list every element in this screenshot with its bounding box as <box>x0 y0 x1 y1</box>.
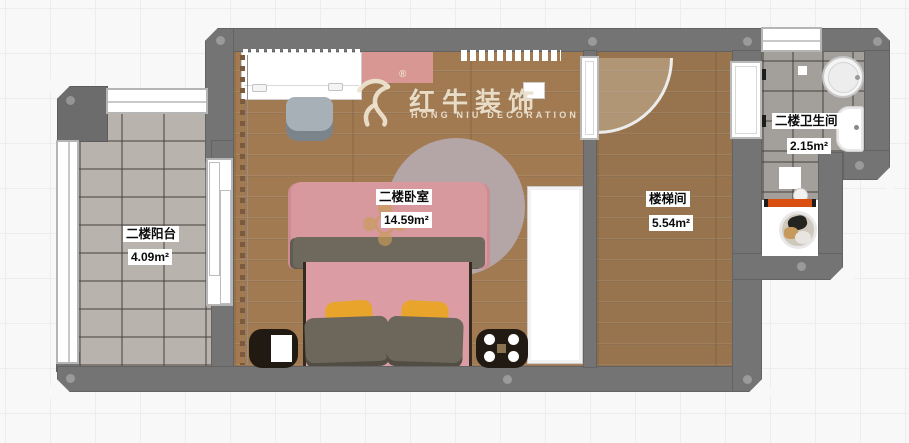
bathroom-door-panel <box>730 61 762 139</box>
gray-pillow <box>304 316 390 369</box>
bull-icon <box>352 76 406 128</box>
bathroom-area: 2.15m² <box>787 138 831 154</box>
washing-machine <box>762 200 818 256</box>
laundry-light <box>795 231 811 244</box>
nightstand-left <box>249 329 298 368</box>
basin-faucet <box>855 75 860 80</box>
knob <box>484 334 495 345</box>
wall-balcony-corner <box>57 86 108 142</box>
wall-joint <box>66 374 75 383</box>
registered-mark: ® <box>399 69 406 80</box>
nightstand-drawer <box>271 335 292 362</box>
wall-joint <box>66 96 75 105</box>
washer-panel <box>764 199 816 207</box>
knob <box>508 334 519 345</box>
knob <box>508 351 519 362</box>
hanging-rail-dashes <box>243 49 361 53</box>
balcony-area: 4.09m² <box>128 249 172 265</box>
balcony-label: 二楼阳台 <box>123 226 179 242</box>
wall-bottom <box>57 366 762 392</box>
sliding-window-pane <box>220 190 231 304</box>
chair <box>286 97 333 141</box>
desk-item <box>328 83 343 91</box>
bathroom-window <box>761 27 822 52</box>
hanger-tabs <box>461 50 561 61</box>
wall-joint <box>743 375 752 384</box>
curtain-rail <box>247 55 248 365</box>
curtain <box>240 55 245 365</box>
nightstand-center <box>497 344 506 353</box>
watermark-subtitle: HONG NIU DECORATION <box>411 110 579 120</box>
wardrobe <box>527 186 583 364</box>
wall-joint <box>503 375 512 384</box>
balcony-left-window <box>56 140 79 364</box>
bedroom-label: 二楼卧室 <box>376 189 432 205</box>
wall-joint <box>588 37 597 46</box>
stairwell-label: 楼梯间 <box>646 191 690 207</box>
washer-drum <box>779 211 817 249</box>
shower-tray <box>779 167 801 189</box>
wall-bathroom-bottom <box>732 253 843 280</box>
desk-item <box>252 84 267 92</box>
knob <box>484 351 495 362</box>
toilet-button <box>854 125 859 130</box>
wall-joint <box>797 262 806 271</box>
wall-joint <box>873 37 882 46</box>
stairwell-area: 5.54m² <box>649 215 693 231</box>
wall-joint <box>216 36 225 45</box>
washbasin <box>822 56 864 98</box>
floor-drain-square <box>798 66 807 75</box>
floor-plan: ® 红牛装饰 HONG NIU DECORATION 二楼卧室 14.59m² … <box>0 0 909 443</box>
bedroom-area: 14.59m² <box>381 212 432 228</box>
nightstand-right <box>476 329 528 368</box>
stairwell-door-panel <box>580 56 599 140</box>
bathroom-label: 二楼卫生间 <box>772 113 841 129</box>
desk <box>241 52 362 100</box>
gray-pillow <box>386 316 464 369</box>
wall-joint <box>743 37 752 46</box>
balcony-top-window <box>106 88 208 114</box>
wall-joint <box>855 161 864 170</box>
sliding-window-pane <box>209 162 220 276</box>
